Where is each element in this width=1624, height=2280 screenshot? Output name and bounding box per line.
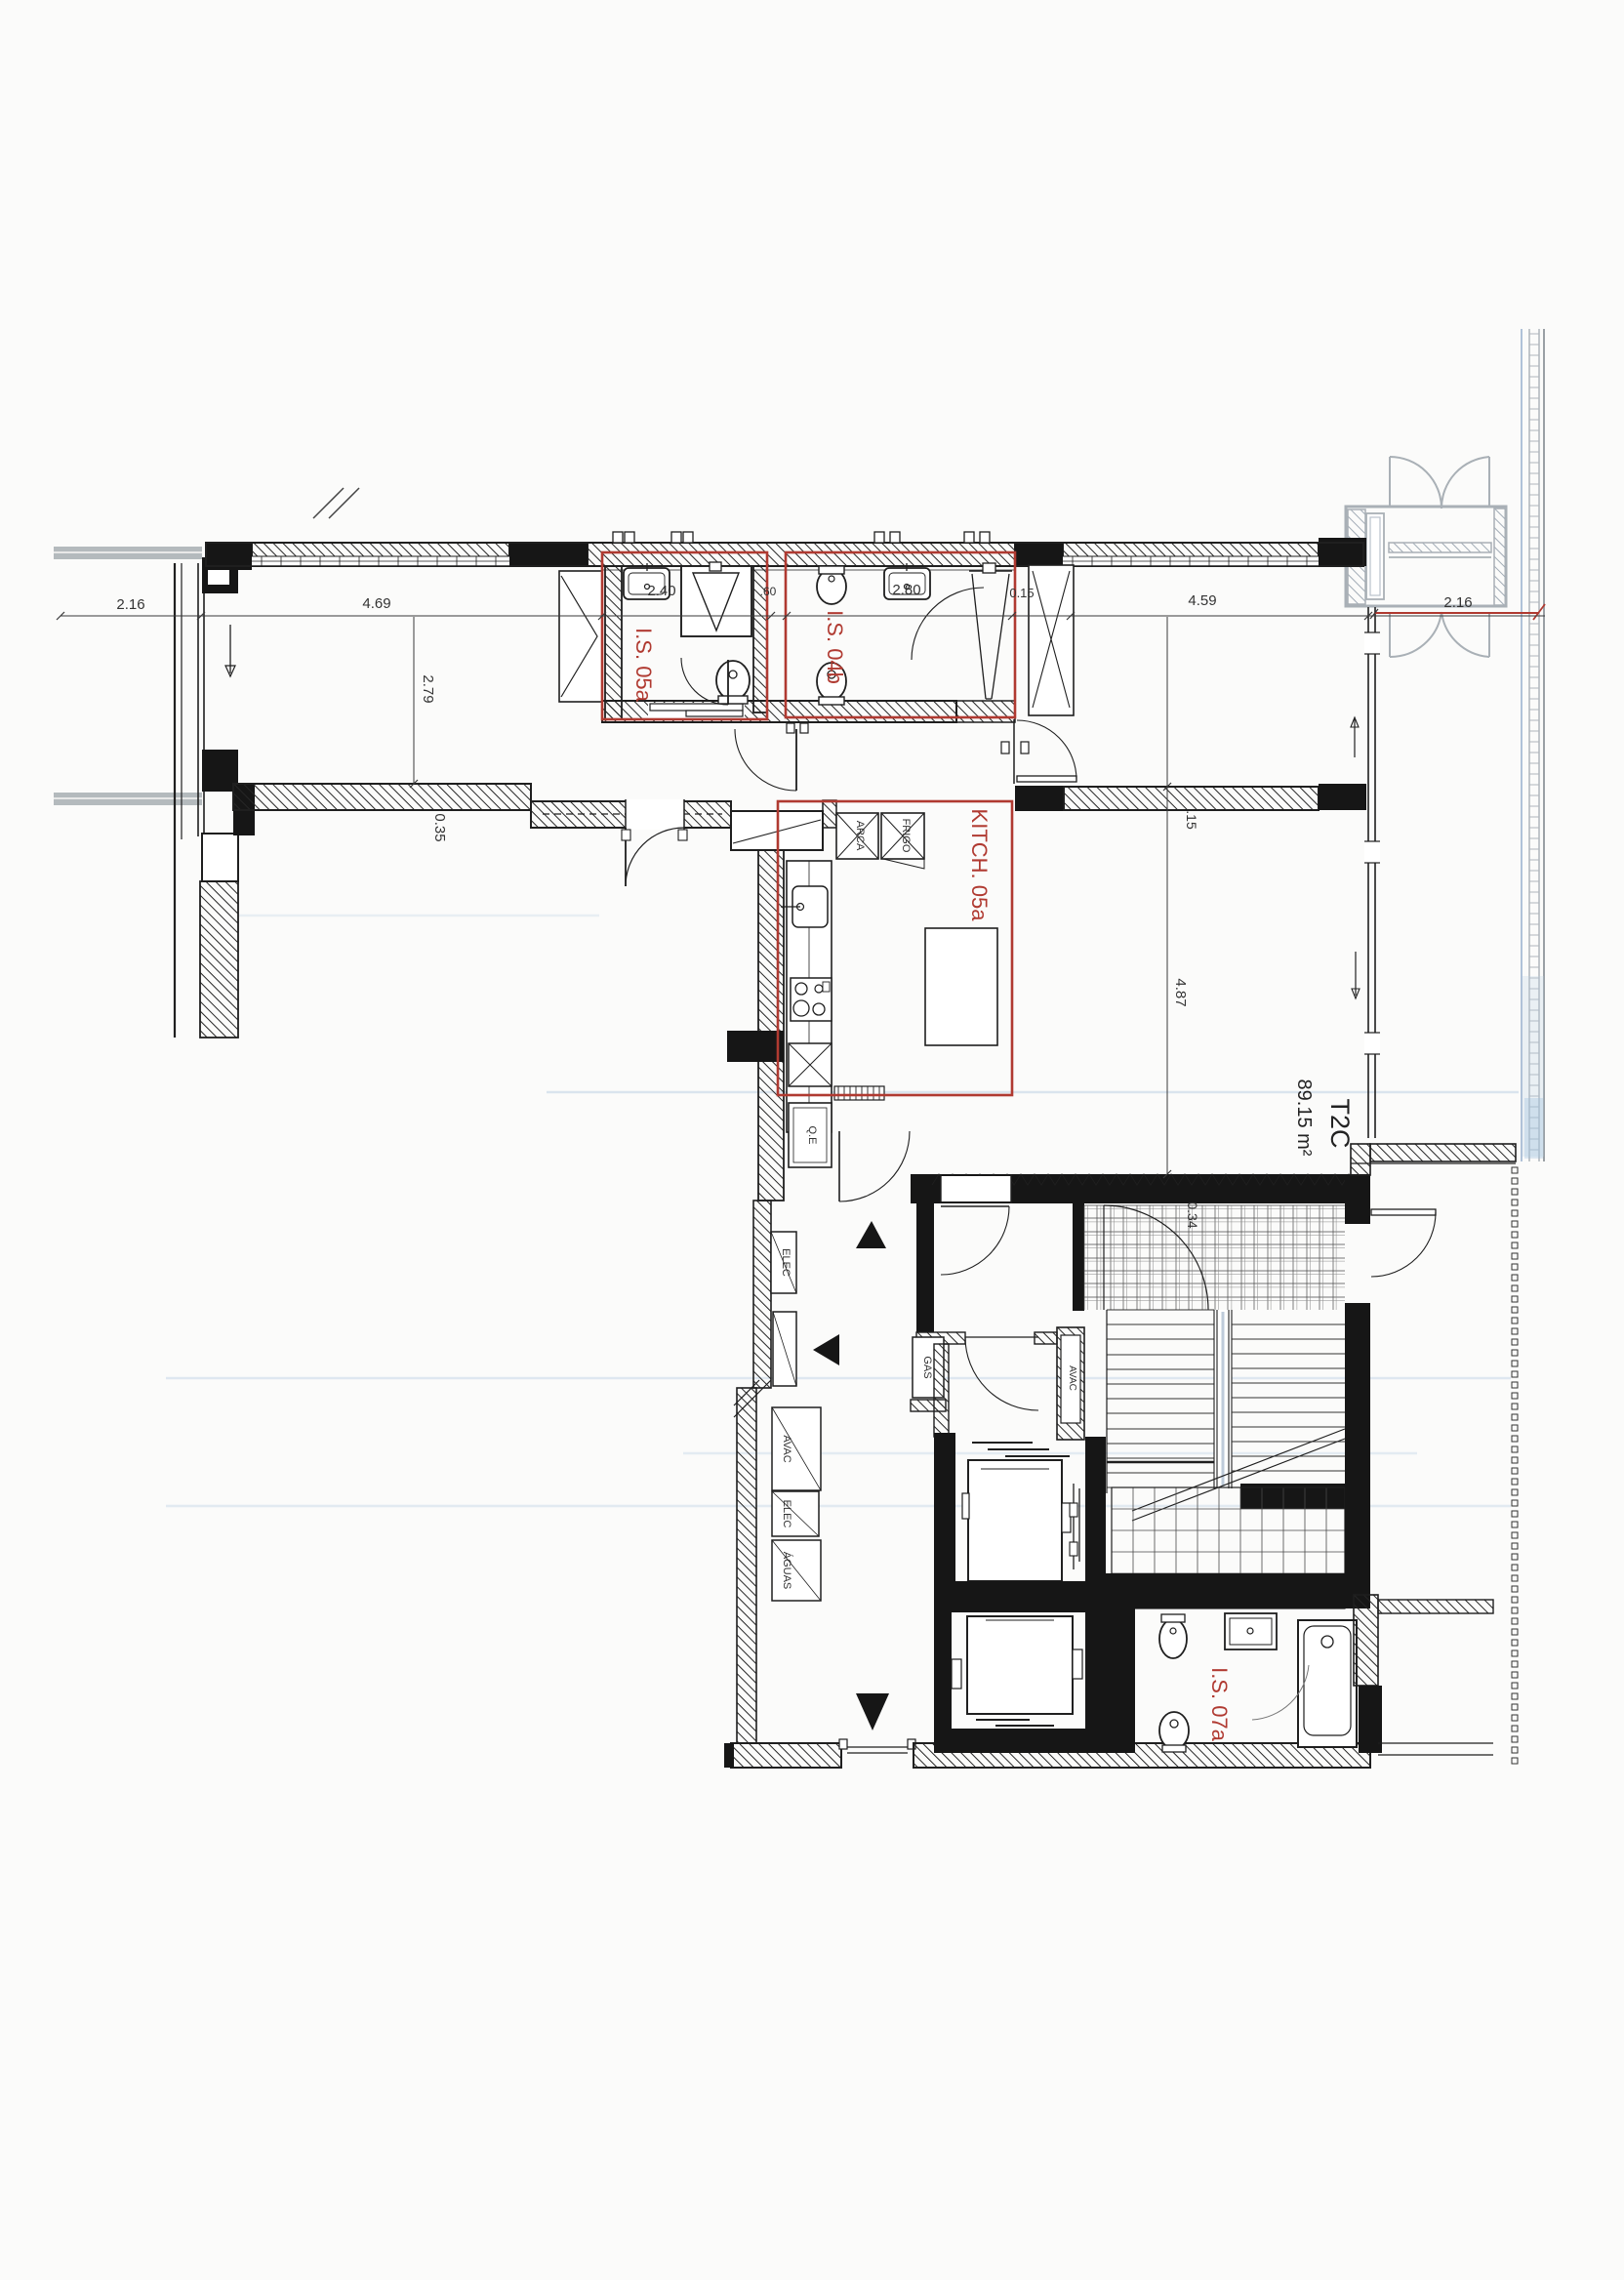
- svg-text:GAS: GAS: [921, 1356, 933, 1378]
- svg-text:0.35: 0.35: [431, 813, 448, 841]
- svg-text:4.87: 4.87: [1172, 978, 1189, 1006]
- svg-text:ARCA: ARCA: [854, 821, 866, 851]
- svg-text:AVAC: AVAC: [1067, 1365, 1077, 1391]
- svg-text:89.15 m²: 89.15 m²: [1293, 1079, 1315, 1157]
- svg-text:ÁGUAS: ÁGUAS: [781, 1552, 793, 1590]
- svg-text:I.S. 07a: I.S. 07a: [1207, 1667, 1232, 1742]
- svg-text:2.16: 2.16: [116, 596, 144, 613]
- svg-text:2.79: 2.79: [420, 674, 436, 703]
- svg-text:0.34: 0.34: [1185, 1201, 1200, 1228]
- svg-text:.15: .15: [1184, 810, 1199, 830]
- svg-text:2.16: 2.16: [1443, 594, 1472, 611]
- svg-text:2.40: 2.40: [647, 583, 675, 599]
- svg-text:4.69: 4.69: [362, 595, 390, 612]
- svg-text:KITCH. 05a: KITCH. 05a: [967, 809, 992, 922]
- svg-text:FRIGO: FRIGO: [900, 819, 912, 853]
- svg-text:I.S. 05a: I.S. 05a: [631, 628, 656, 703]
- svg-text:0.15: 0.15: [1009, 586, 1034, 600]
- svg-text:ELEC: ELEC: [780, 1248, 792, 1277]
- svg-text:ELEC: ELEC: [781, 1500, 792, 1528]
- svg-text:4.59: 4.59: [1188, 592, 1216, 609]
- svg-text:T2C: T2C: [1325, 1098, 1355, 1148]
- svg-text:Q.E: Q.E: [806, 1126, 818, 1145]
- svg-text:.60: .60: [760, 585, 777, 598]
- svg-text:I.S. 04b: I.S. 04b: [823, 610, 847, 684]
- svg-text:2.80: 2.80: [892, 582, 920, 598]
